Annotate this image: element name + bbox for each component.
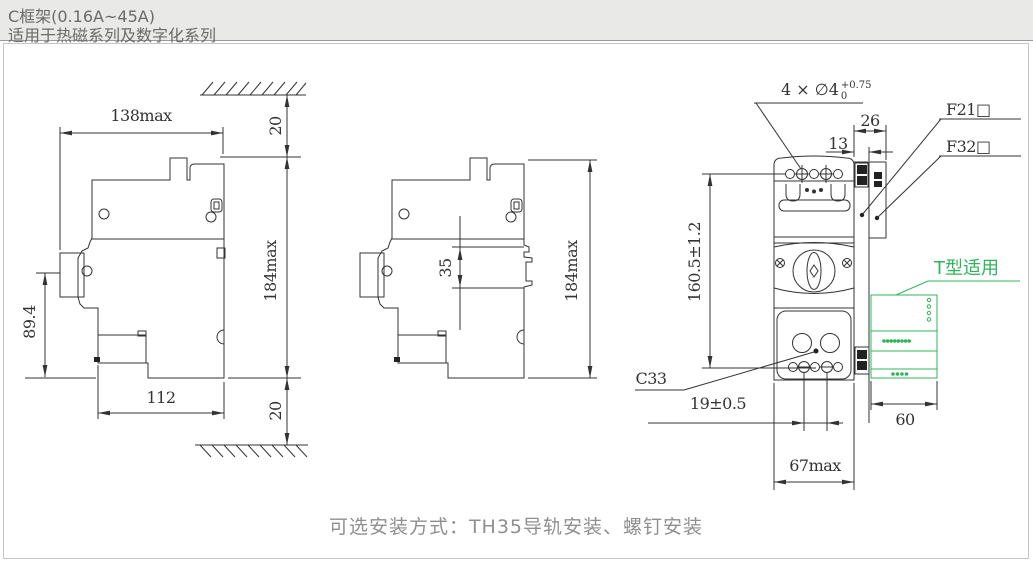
dim-label-mounting-height-160-5: 160.5±1.2 bbox=[687, 222, 703, 302]
holes-tol-lower: 0 bbox=[841, 91, 872, 102]
front-view-dimensions bbox=[635, 103, 937, 490]
dim-label-rail-slot-35: 35 bbox=[438, 258, 454, 277]
mounting-caption: 可选安装方式：TH35导轨安装、螺钉安装 bbox=[3, 512, 1029, 539]
technical-drawing bbox=[0, 0, 1033, 574]
dim-label-mounting-holes: 4 × ∅4 +0.75 0 bbox=[781, 80, 872, 102]
page: C框架(0.16A~45A) 适用于热磁系列及数字化系列 bbox=[0, 0, 1033, 574]
dim-label-rail-depth-13: 13 bbox=[828, 136, 847, 152]
label-t-type: T型适用 bbox=[934, 260, 999, 278]
dim-label-terminal-pitch-19: 19±0.5 bbox=[690, 396, 746, 412]
label-f21: F21□ bbox=[946, 102, 991, 118]
side-view-screw-mount bbox=[60, 158, 225, 378]
front-view bbox=[774, 156, 854, 380]
dim-label-base-width-112: 112 bbox=[146, 390, 175, 406]
dim-label-width-67max: 67max bbox=[789, 458, 841, 474]
dim-label-height-184max-left: 184max bbox=[263, 240, 279, 301]
label-f32: F32□ bbox=[946, 139, 991, 155]
label-c33: C33 bbox=[635, 371, 666, 387]
wall-hatch bbox=[200, 82, 306, 95]
dim-label-width-138max: 138max bbox=[110, 108, 171, 124]
dim-label-lever-height-89-4: 89.4 bbox=[22, 305, 38, 339]
holes-tolerance-stack: +0.75 0 bbox=[841, 80, 872, 102]
t-type-accessory bbox=[871, 281, 1020, 378]
dim-label-accessory-width-60: 60 bbox=[895, 412, 914, 428]
holes-tol-upper: +0.75 bbox=[841, 80, 872, 91]
holes-text: 4 × ∅4 bbox=[781, 80, 839, 99]
dim-label-module-depth-26: 26 bbox=[860, 113, 879, 129]
dim-label-bottom-clearance-20: 20 bbox=[268, 401, 284, 420]
dim-label-top-clearance-20: 20 bbox=[268, 116, 284, 135]
dim-label-height-184max-mid: 184max bbox=[564, 240, 580, 301]
floor-hatch bbox=[195, 445, 308, 457]
